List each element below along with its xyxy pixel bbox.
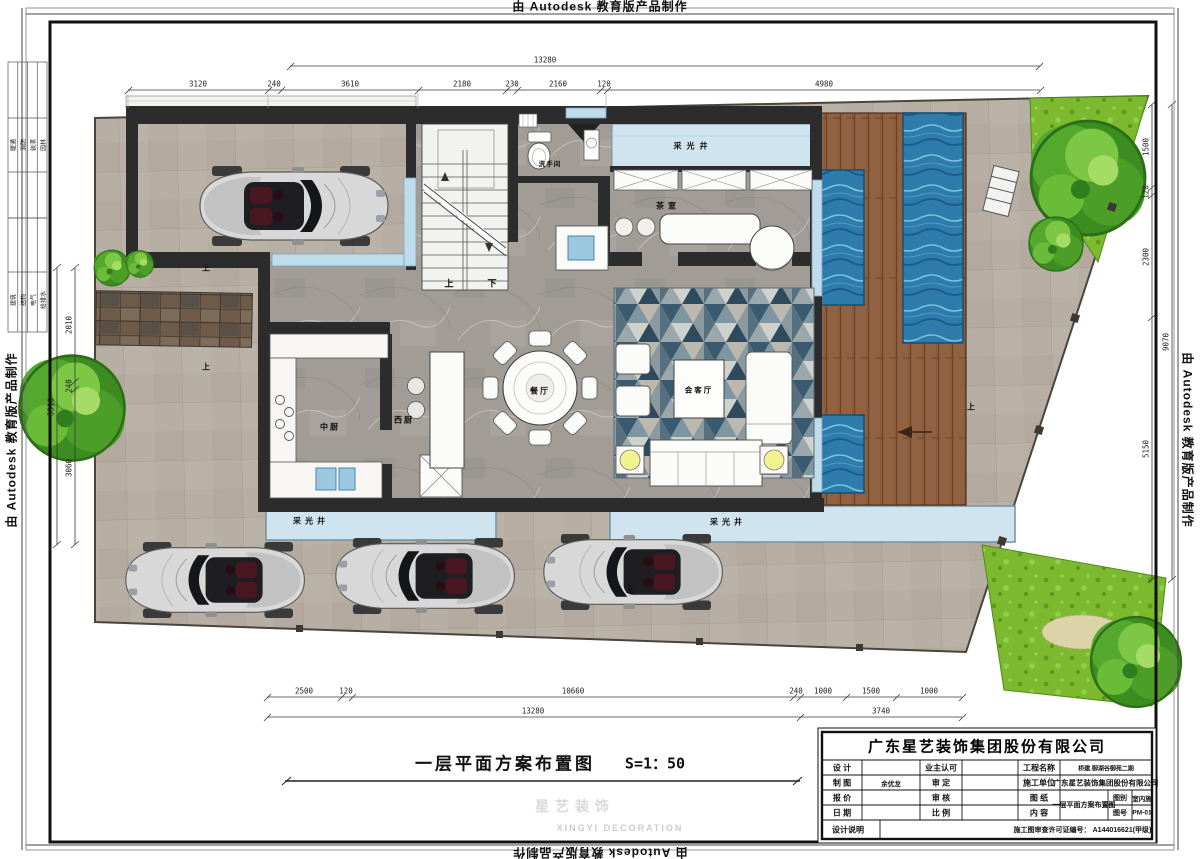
stair-up-label: 上: [444, 277, 453, 290]
deck-up-label: 上: [967, 402, 975, 413]
site-up-label-3: 上: [626, 585, 634, 596]
stair-down-label: 下: [487, 277, 496, 290]
car-parked-2: [336, 538, 515, 614]
dim-left-seg-1: 240: [65, 379, 74, 393]
tb-value-project-name: 桥建.御湖谷御苑二期: [1078, 764, 1134, 773]
room-label-bathroom: 洗手间: [539, 158, 562, 168]
autodesk-stamp-top: 由 Autodesk 教育版产品制作: [512, 0, 687, 15]
dim-bot-seg-1: 120: [339, 687, 353, 696]
room-label-kitchen-cn: 中厨: [320, 422, 340, 433]
lightwell-label-top: 采光井: [674, 141, 713, 152]
tb-label-category: 图别: [1113, 793, 1127, 803]
signoff-hvac: 暖通: [9, 139, 18, 151]
car-parked-3: [544, 534, 723, 610]
living-room: [614, 288, 814, 486]
tb-value-number: PM-01: [1132, 810, 1151, 817]
tea-counter: [556, 226, 608, 270]
dim-left-total: 5310: [47, 398, 56, 416]
staircase: [422, 124, 508, 290]
signoff-decor: 装潢: [29, 139, 38, 151]
dim-bot-seg-4: 1000: [814, 687, 832, 696]
dim-bot-seg-5: 1500: [862, 687, 880, 696]
dim-bot-total-right: 3740: [872, 707, 890, 716]
tb-label-approve: 审 定: [932, 778, 950, 789]
site-up-label-2: 上: [202, 362, 210, 373]
dim-right-seg-1: 120: [1142, 185, 1151, 199]
signoff-landscape: 园林: [39, 139, 48, 151]
dim-bot-total-left: 13280: [522, 707, 545, 716]
garage-eave: [126, 96, 416, 107]
dim-bot-seg-2: 10660: [562, 687, 585, 696]
dim-bot-seg-6: 1000: [920, 687, 938, 696]
dim-top-seg-0: 3120: [189, 80, 207, 89]
tb-value-category: 室内施: [1132, 793, 1152, 803]
tb-label-license: 施工图审查许可证编号：: [1014, 825, 1091, 835]
room-label-kitchen-west: 西厨: [394, 415, 414, 426]
tb-label-quote: 报 价: [833, 793, 851, 804]
tb-value-contractor: 广东星艺装饰集团股份有限公司: [1054, 778, 1159, 789]
tb-label-review: 审 核: [932, 793, 950, 804]
room-label-living: 会客厅: [685, 385, 714, 396]
autodesk-stamp-right: 由 Autodesk 教育版产品制作: [1180, 352, 1197, 527]
dim-right-seg-2: 2300: [1142, 248, 1151, 266]
autodesk-stamp-bottom: 由 Autodesk 教育版产品制作: [512, 845, 687, 859]
tb-label-drawing: 图 纸: [1030, 793, 1048, 804]
dim-top-seg-7: 4980: [815, 80, 833, 89]
dim-top-total: 13280: [534, 56, 557, 65]
tb-label-content: 内 容: [1030, 808, 1048, 819]
dim-top-seg-3: 2180: [453, 80, 471, 89]
dim-bot-seg-0: 2500: [295, 687, 313, 696]
autodesk-stamp-left: 由 Autodesk 教育版产品制作: [3, 352, 20, 527]
plan-title: 一层平面方案布置图: [415, 750, 595, 775]
tb-value-license: A144016621(甲级): [1093, 825, 1152, 835]
dim-left-seg-0: 2010: [65, 316, 74, 334]
dim-top-seg-1: 240: [267, 80, 281, 89]
dim-left-seg-2: 3060: [65, 459, 74, 477]
tb-value-drawing-content: 一层平面方案布置图: [1053, 800, 1116, 810]
titleblock-company: 广东星艺装饰集团股份有限公司: [868, 736, 1106, 757]
signoff-plumbing: 给排水: [39, 291, 48, 309]
car-parked-1: [126, 542, 305, 618]
title-underline: [282, 777, 802, 785]
tb-label-contractor: 施工单位: [1023, 778, 1055, 789]
slate-walkway: [96, 291, 253, 348]
tb-label-project-name: 工程名称: [1023, 763, 1055, 774]
tb-label-date: 日 期: [833, 808, 851, 819]
site-up-label-1: 上: [202, 263, 210, 274]
dim-bot-seg-3: 240: [789, 687, 803, 696]
signoff-arch: 建筑: [9, 294, 18, 306]
car-garage: [200, 166, 388, 246]
watermark-en: XINGYI DECORATION: [557, 823, 684, 833]
lightwell-label-bottom-right: 采光井: [710, 517, 746, 528]
watermark-cn: 星艺装饰: [535, 796, 615, 816]
signoff-fire: 消防: [19, 139, 28, 151]
tb-label-ratio: 比 例: [932, 808, 950, 819]
room-label-tea: 茶室: [656, 201, 680, 212]
dim-right-seg-0: 1500: [1142, 138, 1151, 156]
dim-right-lower: 5150: [1142, 440, 1151, 458]
tb-label-draft: 制 图: [833, 778, 851, 789]
tb-label-number: 图号: [1113, 808, 1127, 818]
dim-top-seg-4: 230: [505, 80, 519, 89]
floor-plan-graphics: [0, 0, 1200, 859]
room-label-dining: 餐厅: [530, 386, 550, 397]
dim-top-seg-5: 2160: [549, 80, 567, 89]
tb-label-design: 设 计: [833, 763, 851, 774]
drawing-sheet: 由 Autodesk 教育版产品制作 由 Autodesk 教育版产品制作 由 …: [0, 0, 1200, 859]
dim-right-total: 9070: [1162, 333, 1171, 351]
plan-scale: S=1：50: [625, 753, 685, 774]
tb-label-design-note: 设计说明: [832, 825, 864, 836]
dim-top-seg-2: 3610: [341, 80, 359, 89]
dim-top-seg-6: 120: [597, 80, 611, 89]
signoff-struct: 结构: [19, 294, 28, 306]
signoff-elec: 电气: [29, 294, 38, 306]
lightwell-label-bottom-left: 采光井: [293, 516, 329, 527]
tb-label-owner-approve: 业主认可: [925, 763, 957, 774]
tb-value-draft: 余优龙: [881, 778, 901, 788]
